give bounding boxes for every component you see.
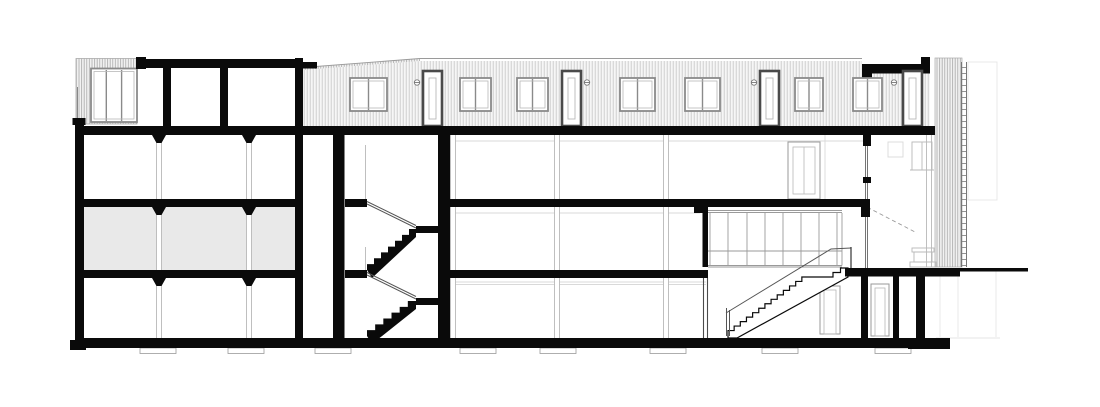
- facade-door: [903, 71, 922, 126]
- slab-upper-right: [450, 199, 870, 207]
- slab-upper-left: [84, 199, 295, 207]
- pavilion-wall-2: [220, 68, 228, 127]
- stair-flight: [367, 229, 416, 278]
- footing-mark: [228, 348, 264, 354]
- column: [664, 135, 669, 338]
- door-under-stair: [820, 286, 840, 334]
- door-under-landing: [871, 284, 889, 336]
- column-capital: [242, 278, 256, 286]
- building-section-figure: Longitudinal building section — multi-st…: [0, 0, 1100, 407]
- mullion-set: [710, 213, 837, 266]
- grand-stair-flight: [728, 268, 848, 338]
- basement-wall-1: [861, 276, 868, 338]
- landing-slab: [845, 268, 960, 277]
- ground-slab: [75, 338, 936, 348]
- slab-end-hook: [861, 207, 870, 217]
- facade-vent-icon: [414, 80, 419, 85]
- facade-door: [760, 71, 779, 126]
- left-footing: [70, 340, 86, 350]
- stair-flight: [367, 301, 416, 344]
- footing-mark: [650, 348, 686, 354]
- column-capital: [152, 278, 166, 286]
- ground-line: [958, 268, 1028, 272]
- stair-landing: [416, 226, 438, 233]
- facade-vent-icon: [891, 80, 896, 85]
- column: [451, 135, 456, 338]
- central-stair: [345, 199, 438, 344]
- column-capital: [152, 135, 166, 143]
- left-exterior-wall: [75, 120, 84, 348]
- core-wall: [295, 58, 303, 338]
- grand-stair: [728, 268, 848, 338]
- facade-window: [620, 78, 655, 111]
- slab-middle-right: [450, 270, 708, 278]
- footing-mark: [762, 348, 798, 354]
- facade-window: [350, 78, 387, 111]
- stair-landing: [416, 298, 438, 305]
- roof-slab-left: [136, 59, 303, 68]
- shaft-elevation-strip: [935, 58, 962, 267]
- facade-vent-icon: [751, 80, 756, 85]
- pedestal-outline: [910, 248, 936, 267]
- footing-mark: [460, 348, 496, 354]
- footing-mark: [875, 348, 911, 354]
- under-landing-doors: [820, 284, 889, 336]
- stair-hall-glazed-wall: [708, 211, 842, 268]
- roof-corner-piece: [303, 62, 317, 69]
- end-window: [91, 69, 137, 123]
- facade-door: [562, 71, 581, 126]
- slab-roof-of-main-body: [75, 126, 935, 135]
- pavilion-wall-1: [163, 68, 171, 127]
- footing-marks: [140, 348, 911, 354]
- stairwell-wall-left: [333, 135, 345, 338]
- right-exterior-wall: [916, 276, 925, 341]
- slab-downstand-beam: [694, 207, 707, 213]
- slab-middle-left: [84, 270, 295, 278]
- roof-end-block: [862, 64, 872, 79]
- right-footing: [908, 338, 950, 349]
- facade-window: [853, 78, 882, 111]
- column-capital: [242, 135, 256, 143]
- wall-cabinet-outline: [888, 142, 903, 157]
- drawing-sheet: Longitudinal building section — multi-st…: [0, 0, 1100, 407]
- stair-landing: [345, 199, 367, 207]
- facade-door: [423, 71, 442, 126]
- footing-mark: [315, 348, 351, 354]
- stair-landing: [345, 270, 367, 278]
- facade-window: [685, 78, 720, 111]
- facade-window: [517, 78, 548, 111]
- footing-mark: [540, 348, 576, 354]
- column: [555, 135, 560, 338]
- ladder: [962, 62, 967, 267]
- facade-window: [460, 78, 491, 111]
- background-outline: [968, 62, 997, 200]
- upper-level-door: [788, 142, 820, 199]
- rooftop-pavilion: [76, 57, 930, 127]
- upper-right-window: [910, 142, 934, 170]
- facade-vent-icon: [584, 80, 589, 85]
- basement-wall-2: [893, 276, 899, 338]
- footing-mark: [140, 348, 176, 354]
- stairwell-wall-right: [438, 135, 450, 338]
- central-stair-railings: [366, 145, 417, 299]
- facade-window: [795, 78, 823, 111]
- shaded-middle-room: [84, 207, 295, 270]
